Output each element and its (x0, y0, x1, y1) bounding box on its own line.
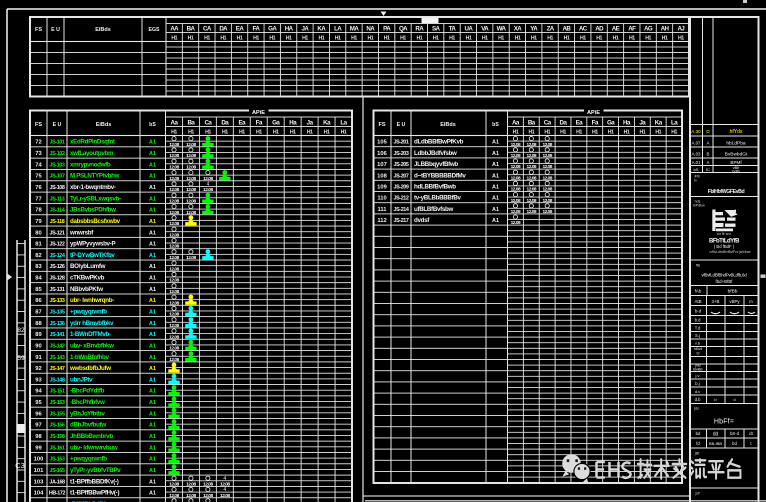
svg-text:88: 88 (35, 321, 42, 327)
svg-text:H1: H1 (171, 36, 177, 42)
svg-text:wnwrsbf: wnwrsbf (69, 229, 94, 236)
svg-text:H1: H1 (256, 129, 262, 135)
svg-text:JS-163: JS-163 (50, 457, 65, 463)
svg-text:12.08: 12.08 (542, 175, 552, 181)
svg-text:AB: AB (563, 26, 572, 33)
svg-text:JS-156: JS-156 (50, 423, 65, 429)
svg-text:A1: A1 (149, 196, 156, 202)
svg-text:105: 105 (377, 140, 387, 146)
svg-text:b-d: b-d (695, 309, 702, 314)
svg-text:ubr- lwnhwrqnb-: ubr- lwnhwrqnb- (70, 297, 114, 304)
svg-text:FS: FS (35, 27, 42, 33)
svg-text:H1: H1 (307, 129, 313, 135)
svg-text:12.08: 12.08 (542, 153, 552, 159)
svg-text:96: 96 (35, 411, 42, 417)
svg-text:hfYds: hfYds (730, 129, 743, 135)
svg-text:4: 4 (223, 487, 226, 493)
svg-text:NBbvbPKfw: NBbvbPKfw (70, 286, 103, 293)
svg-text:111: 111 (377, 207, 387, 213)
svg-text:12.08: 12.08 (186, 165, 196, 171)
svg-text:A: A (707, 160, 710, 165)
svg-text:H1: H1 (171, 129, 177, 135)
svg-text:A1: A1 (492, 151, 499, 157)
svg-text:1-BWnDfTMvb-: 1-BWnDfTMvb- (70, 331, 111, 338)
svg-text:12.08: 12.08 (527, 153, 537, 159)
svg-text:JS-214: JS-214 (394, 207, 409, 213)
svg-text:Ka: Ka (655, 119, 663, 126)
svg-text:bS: bS (694, 167, 699, 172)
svg-text:vvBvLdbvBfvfBvfFvv jwfcfnwr: vvBvLdbvBfvfBvfFvv jwfcfnwr (709, 250, 751, 254)
svg-text:A1: A1 (149, 287, 156, 293)
svg-text:A1: A1 (149, 479, 156, 485)
svg-text:b.d: b.d (695, 318, 701, 323)
svg-text:JS-131: JS-131 (50, 287, 65, 293)
svg-text:FblHbfWGFEvBd: FblHbfWGFEvBd (708, 189, 745, 195)
svg-text:AJ: AJ (677, 26, 685, 33)
svg-text:72: 72 (35, 140, 41, 146)
svg-text:95: 95 (35, 400, 42, 406)
svg-text:12.08: 12.08 (169, 221, 179, 227)
svg-text:12.08: 12.08 (186, 199, 196, 205)
svg-text:H1: H1 (302, 36, 308, 42)
svg-text:98: 98 (35, 434, 42, 440)
svg-text:104: 104 (34, 491, 44, 497)
svg-text:109: 109 (377, 185, 387, 191)
svg-text:12.08: 12.08 (511, 198, 521, 204)
svg-text:xwfLayoutpvbm: xwfLayoutpvbm (70, 150, 114, 157)
svg-text:Aa: Aa (512, 119, 520, 126)
svg-text:JS-103: JS-103 (50, 162, 65, 168)
svg-text:C3: C3 (15, 461, 25, 470)
svg-text:JS-142: JS-142 (50, 344, 65, 350)
svg-text:JS-147: JS-147 (50, 366, 65, 372)
svg-text:12.08: 12.08 (220, 493, 230, 499)
svg-text:JS-121: JS-121 (50, 230, 65, 236)
svg-text:Da: Da (221, 119, 229, 126)
svg-text:cTKBwPKvb: cTKBwPKvb (70, 275, 105, 282)
svg-text:A.07: A.07 (691, 141, 701, 146)
svg-text:12.08: 12.08 (169, 289, 179, 295)
svg-text:APiE: APiE (587, 110, 600, 116)
svg-text:t1-BPffbBBDfKv(-): t1-BPffbBBDfKv(-) (70, 478, 119, 485)
svg-text:A1: A1 (492, 196, 499, 202)
svg-text:yBhJcYfbtbv: yBhJcYfbtbv (70, 410, 105, 417)
svg-text:59: 59 (17, 355, 25, 362)
svg-text:XA: XA (514, 26, 523, 33)
svg-text:JA-168: JA-168 (49, 479, 65, 485)
svg-text:JS-201: JS-201 (394, 140, 409, 146)
svg-text:A.01: A.01 (692, 160, 701, 165)
svg-text:4: 4 (207, 182, 210, 188)
svg-text:BA: BA (187, 26, 196, 33)
svg-text:H1: H1 (678, 36, 684, 42)
svg-text:H1: H1 (335, 36, 341, 42)
svg-text:A1: A1 (149, 253, 156, 259)
svg-text:84: 84 (35, 276, 42, 282)
svg-text:H1: H1 (645, 36, 651, 42)
svg-text:JS-143: JS-143 (50, 355, 65, 361)
svg-text:xbr-1-bwqntmbv-: xbr-1-bwqntmbv- (70, 184, 116, 191)
svg-text:A1: A1 (149, 151, 156, 157)
svg-text:A1: A1 (149, 366, 156, 372)
svg-text:A1: A1 (149, 310, 156, 316)
svg-text:A1: A1 (149, 298, 156, 304)
svg-text:TyLr-ySBLxwqsvb-: TyLr-ySBLxwqsvb- (70, 195, 121, 202)
svg-text:A1: A1 (492, 218, 499, 224)
svg-text:H1: H1 (596, 36, 602, 42)
svg-text:JS-133: JS-133 (50, 298, 65, 304)
svg-text:H1: H1 (273, 129, 279, 135)
svg-text:12.08: 12.08 (169, 278, 179, 284)
svg-text:ubv- ldwnwrvbuw: ubv- ldwnwrvbuw (70, 444, 118, 451)
svg-text:12.08: 12.08 (527, 164, 537, 170)
svg-text:AC: AC (579, 26, 588, 33)
svg-text:86: 86 (35, 298, 42, 304)
svg-text:12.08: 12.08 (169, 244, 179, 250)
svg-text:NA: NA (366, 26, 375, 33)
svg-text:d: d (733, 397, 735, 402)
svg-text:WA: WA (497, 26, 507, 33)
svg-text:H1: H1 (253, 36, 259, 42)
svg-text:12.08: 12.08 (169, 142, 179, 148)
svg-text:12.08: 12.08 (169, 357, 179, 363)
svg-text:H1: H1 (188, 36, 194, 42)
svg-text:FS: FS (378, 122, 385, 128)
svg-text:PA: PA (383, 26, 391, 33)
svg-text:dLdbBBfBwPfKvb: dLdbBBfBwPfKvb (414, 139, 464, 146)
svg-text:DA: DA (219, 26, 228, 33)
svg-text:j.v: j.v (695, 373, 700, 378)
svg-text:JS-155: JS-155 (50, 411, 65, 417)
svg-text:A1: A1 (149, 185, 156, 191)
svg-text:H1: H1 (222, 129, 228, 135)
svg-text:JS-141: JS-141 (50, 332, 65, 338)
svg-text:H1: H1 (188, 129, 194, 135)
svg-text:GA: GA (268, 26, 277, 33)
svg-text:VA: VA (481, 26, 489, 33)
svg-text:H1: H1 (560, 129, 566, 135)
svg-text:12.08: 12.08 (169, 199, 179, 205)
svg-text:E U: E U (397, 122, 406, 128)
svg-text:JS-113: JS-113 (50, 196, 65, 202)
svg-text:12.08: 12.08 (511, 175, 521, 181)
svg-text:HB-172: HB-172 (49, 491, 66, 497)
svg-text:12.08: 12.08 (542, 198, 552, 204)
svg-text:12.08: 12.08 (511, 209, 521, 215)
svg-text:AF: AF (628, 26, 636, 33)
svg-text:12.08: 12.08 (169, 266, 179, 272)
svg-text:12.08: 12.08 (169, 187, 179, 193)
svg-text:H1: H1 (466, 36, 472, 42)
svg-text:yTyPr-yvBbfvTBPv: yTyPr-yvBbfvTBPv (70, 467, 121, 474)
svg-text:103: 103 (34, 479, 44, 485)
svg-text:H1: H1 (629, 36, 635, 42)
svg-text:KA: KA (317, 26, 326, 33)
svg-text:12.08: 12.08 (511, 187, 521, 193)
svg-text:101: 101 (34, 468, 44, 474)
svg-text:H1: H1 (449, 36, 455, 42)
svg-text:Ga: Ga (607, 119, 615, 126)
svg-text:1-bWnBfnfhbv: 1-bWnBfnfhbv (70, 354, 110, 361)
svg-text:A1: A1 (492, 173, 499, 179)
svg-text:12.08: 12.08 (169, 300, 179, 306)
svg-text:APiE: APiE (252, 110, 265, 116)
svg-text:Ga: Ga (272, 119, 280, 126)
svg-text:A1: A1 (149, 321, 156, 327)
svg-text:BvBwbdGt: BvBwbdGt (725, 152, 748, 158)
svg-text:ZA: ZA (547, 26, 555, 33)
svg-text:JS-136: JS-136 (50, 321, 65, 327)
svg-text:H1: H1 (269, 36, 275, 42)
svg-text:bfBb: bfBb (728, 289, 738, 295)
svg-text:E U: E U (53, 122, 62, 128)
svg-text:CA: CA (203, 26, 212, 33)
svg-text:A1: A1 (149, 389, 156, 395)
svg-text:H1: H1 (367, 36, 373, 42)
svg-text:99: 99 (35, 445, 42, 451)
svg-text:83: 83 (35, 264, 42, 270)
svg-text:4: 4 (223, 476, 226, 482)
svg-text:vfBvfLdBfBhdPvBLdfb.6d: vfBvfLdBfBhdPvBLdfb.6d (702, 273, 748, 278)
svg-text:H1: H1 (204, 36, 210, 42)
svg-text:H1: H1 (341, 129, 347, 135)
svg-text:Ca: Ca (204, 119, 212, 126)
svg-text:AA: AA (170, 26, 179, 33)
svg-text:JS-135: JS-135 (50, 310, 65, 316)
svg-text:FA: FA (253, 26, 261, 33)
svg-text:d--tBYBBBBBDfMv: d--tBYBBBBBDfMv (414, 172, 466, 179)
svg-text:Ea: Ea (576, 119, 584, 126)
svg-text:A1: A1 (492, 185, 499, 191)
svg-text:JS-205: JS-205 (394, 162, 409, 168)
svg-text:Fa: Fa (256, 119, 263, 126)
svg-text:A1: A1 (149, 355, 156, 361)
svg-text:106: 106 (377, 151, 387, 157)
svg-text:EiBds: EiBds (440, 122, 456, 128)
svg-text:RA: RA (415, 26, 424, 33)
svg-text:3+B: 3+B (712, 299, 720, 304)
svg-text:12.08: 12.08 (542, 209, 552, 215)
svg-text:hdLBBfBvfBwb: hdLBBfBvfBwb (414, 184, 456, 191)
svg-text:+pwqyqrwnfb: +pwqyqrwnfb (70, 309, 107, 316)
svg-text:A1: A1 (149, 445, 156, 451)
svg-text:107: 107 (377, 162, 387, 168)
svg-text:12.08: 12.08 (186, 142, 196, 148)
svg-text:Fa: Fa (592, 119, 599, 126)
svg-text:74: 74 (35, 162, 42, 168)
svg-text:12.08: 12.08 (169, 312, 179, 318)
svg-text:fC: fC (706, 167, 710, 172)
svg-text:B: B (707, 152, 710, 157)
svg-text:73: 73 (35, 151, 42, 157)
svg-text:bd: bd (732, 441, 737, 446)
svg-text:A1: A1 (149, 276, 156, 282)
svg-text:12.08: 12.08 (169, 176, 179, 182)
svg-text:12.08: 12.08 (511, 164, 521, 170)
svg-text:H1: H1 (400, 36, 406, 42)
svg-text:12.08: 12.08 (169, 346, 179, 352)
svg-text:tv: tv (694, 179, 697, 183)
svg-text:A1: A1 (149, 162, 156, 168)
svg-text:JS-212: JS-212 (394, 196, 409, 202)
svg-text:93: 93 (35, 377, 42, 383)
svg-text:A1: A1 (149, 230, 156, 236)
svg-text:JS-207: JS-207 (394, 173, 409, 179)
svg-text:H1: H1 (528, 129, 534, 135)
svg-text:12.08: 12.08 (169, 232, 179, 238)
svg-text:12.08: 12.08 (169, 153, 179, 159)
svg-text:A1: A1 (149, 140, 156, 146)
svg-text:EiBds: EiBds (96, 122, 112, 128)
svg-text:H1: H1 (531, 36, 537, 42)
svg-text:H1: H1 (384, 36, 390, 42)
svg-text:94: 94 (35, 389, 42, 395)
svg-text:H1: H1 (624, 129, 630, 135)
svg-text:12.08: 12.08 (203, 493, 213, 499)
svg-text:dabsbbsBcsfxwbv: dabsbbsBcsfxwbv (70, 218, 121, 225)
svg-text:12.08: 12.08 (186, 187, 196, 193)
svg-text:Ha: Ha (623, 119, 631, 126)
svg-text:JS-101: JS-101 (50, 140, 65, 146)
svg-text:BvBb: BvBb (693, 367, 703, 372)
svg-text:12.08: 12.08 (186, 210, 196, 216)
svg-text:bS: bS (149, 122, 156, 128)
svg-text:FS: FS (35, 122, 42, 128)
svg-text:S.j: S.j (695, 333, 700, 338)
svg-text:hbLdPba: hbLdPba (726, 141, 746, 147)
svg-text:AtB: AtB (694, 299, 701, 304)
svg-text:JS-153: JS-153 (50, 400, 65, 406)
svg-text:H1: H1 (239, 129, 245, 135)
svg-text:A.03: A.03 (691, 152, 701, 157)
svg-text:A1: A1 (149, 208, 156, 214)
svg-text:JS-151: JS-151 (50, 389, 65, 395)
svg-text:+pwqyqrwnfb: +pwqyqrwnfb (70, 456, 107, 463)
svg-text:H1: H1 (513, 129, 519, 135)
svg-text:JS-158: JS-158 (50, 434, 65, 440)
svg-text:76: 76 (35, 185, 42, 191)
svg-text:d.v: d.v (695, 389, 700, 394)
svg-text:12.08: 12.08 (169, 482, 179, 488)
svg-text:UA: UA (465, 26, 474, 33)
svg-text:12.08: 12.08 (511, 220, 521, 226)
svg-text:78: 78 (35, 208, 42, 214)
svg-text:A: A (707, 141, 710, 146)
svg-text:Ka: Ka (323, 119, 331, 126)
svg-text:JS-107: JS-107 (50, 174, 65, 180)
svg-text:BB-fBB: BB-fBB (709, 441, 722, 446)
svg-text:fBl: fBl (696, 264, 701, 268)
svg-text:H1: H1 (576, 129, 582, 135)
svg-text:AG: AG (644, 26, 653, 33)
svg-text:E U: E U (51, 27, 60, 33)
svg-text:dd: dd (713, 432, 719, 438)
svg-text:A.30: A.30 (691, 129, 701, 134)
svg-text:A1: A1 (149, 434, 156, 440)
svg-text:92: 92 (35, 366, 41, 372)
svg-text:JS-217: JS-217 (394, 218, 409, 224)
svg-text:90: 90 (35, 344, 41, 350)
svg-text:A1: A1 (149, 174, 156, 180)
svg-text:112: 112 (377, 218, 386, 224)
svg-text:wwbsdbfbJufw: wwbsdbfbJufw (69, 365, 111, 372)
svg-text:fAb: fAb (695, 289, 702, 294)
svg-text:bS: bS (492, 122, 499, 128)
svg-text:H1: H1 (564, 36, 570, 42)
svg-text:12.08: 12.08 (542, 142, 552, 148)
svg-text:H1: H1 (547, 36, 553, 42)
svg-text:HA: HA (285, 26, 294, 33)
svg-text:77: 77 (35, 196, 41, 202)
svg-text:-BhcPdYdtfb: -BhcPdYdtfb (70, 388, 105, 395)
svg-text:110: 110 (377, 196, 386, 202)
svg-text:Ca: Ca (544, 119, 552, 126)
svg-text:12.08: 12.08 (542, 187, 552, 193)
svg-text:YA: YA (530, 26, 538, 33)
svg-text:H1: H1 (655, 129, 661, 135)
svg-text:TA: TA (449, 26, 457, 33)
svg-text:H1: H1 (662, 36, 668, 42)
svg-text:12.08: 12.08 (169, 334, 179, 340)
svg-text:LA: LA (334, 26, 342, 33)
svg-text:H1: H1 (580, 36, 586, 42)
svg-text:MA: MA (350, 26, 360, 33)
svg-text:-BhcPhfbfvw: -BhcPhfbfvw (70, 399, 105, 406)
svg-text:H1: H1 (237, 36, 243, 42)
svg-text:v.b: v.b (695, 341, 701, 346)
svg-text:H1: H1 (515, 36, 521, 42)
svg-text:ubnJPtv: ubnJPtv (70, 376, 93, 383)
svg-text:JS-124: JS-124 (50, 253, 65, 259)
svg-text:JS-165: JS-165 (50, 468, 65, 474)
svg-text:BO\ybLumfw: BO\ybLumfw (70, 263, 106, 270)
svg-text:jBf: jBf (694, 452, 700, 456)
svg-text:d.b: d.b (695, 397, 701, 402)
svg-text:12.08: 12.08 (527, 142, 537, 148)
svg-text:Da: Da (560, 119, 568, 126)
svg-text:bdfb: bdfb (732, 169, 739, 173)
svg-text:dBhJbvfbufw: dBhJbvfbufw (70, 422, 106, 429)
svg-text:JA: JA (302, 26, 310, 33)
svg-text:BPdbw: BPdbw (693, 204, 705, 208)
svg-text:A1: A1 (149, 264, 156, 270)
svg-text:A1: A1 (149, 219, 156, 225)
svg-text:H1: H1 (639, 129, 645, 135)
svg-text:12.08: 12.08 (511, 153, 521, 159)
svg-text:A1: A1 (149, 423, 156, 429)
svg-text:H1: H1 (592, 129, 598, 135)
svg-text:JS-108: JS-108 (50, 185, 65, 191)
svg-text:ubv- xBnvbfbkw: ubv- xBnvbfbkw (70, 343, 114, 350)
svg-text:80: 80 (35, 230, 41, 236)
svg-text:12.08: 12.08 (203, 187, 213, 193)
svg-text:JS-209: JS-209 (394, 185, 409, 191)
svg-text:EA: EA (236, 26, 245, 33)
svg-text:JS-203: JS-203 (394, 151, 409, 157)
svg-text:A1: A1 (149, 411, 156, 417)
svg-text:m: m (749, 299, 753, 304)
svg-text:ydrr hBmvbfbkv: ydrr hBmvbfbkv (70, 320, 114, 327)
svg-text:ypWPyvywsbv-P: ypWPyvywsbv-P (70, 241, 115, 248)
svg-text:AD: AD (595, 26, 604, 33)
svg-text:A1: A1 (492, 162, 499, 168)
svg-text:EGS: EGS (149, 27, 160, 33)
svg-text:BPMf: BPMf (730, 160, 742, 165)
svg-text:T.d: T.d (695, 326, 701, 331)
svg-text:12.08: 12.08 (527, 198, 537, 204)
svg-text:85: 85 (35, 287, 42, 293)
svg-text:bd: bd (696, 431, 701, 436)
